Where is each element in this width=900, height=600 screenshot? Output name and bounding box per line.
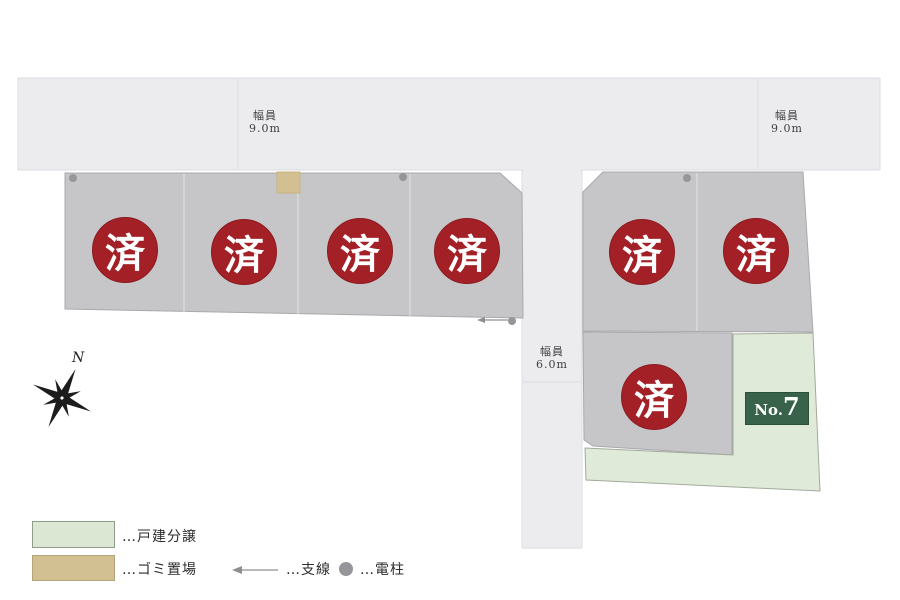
- sold-badge-lot5: 済: [609, 219, 675, 285]
- sold-badge-lot2: 済: [211, 219, 277, 285]
- lot-no-prefix: No.: [754, 401, 783, 419]
- legend-utility-pole-symbol: [339, 562, 353, 576]
- compass-north-label: N: [72, 350, 84, 366]
- road-width-value: 6.0m: [525, 358, 579, 371]
- legend-swatch-garbage-area: [32, 555, 115, 581]
- legend-branch-wire-symbol: [232, 566, 278, 574]
- road-width-text: 幅員: [238, 109, 292, 122]
- road-width-label-vertical: 幅員 6.0m: [525, 345, 579, 371]
- road-width-text: 幅員: [760, 109, 814, 122]
- legend-label-branch-line: …支線: [286, 559, 331, 579]
- legend-swatch-detached-housing: [32, 521, 115, 548]
- road-width-value: 9.0m: [760, 122, 814, 135]
- utility-pole-dot: [683, 174, 691, 182]
- lot-no-number: 7: [783, 395, 800, 419]
- site-plan-page: 幅員 9.0m 幅員 9.0m 幅員 6.0m 済 済 済 済 済 済 済 No…: [0, 0, 900, 600]
- sold-badge-lot3: 済: [327, 218, 393, 284]
- lot-no7-label: No.7: [745, 392, 809, 425]
- road-width-value: 9.0m: [238, 122, 292, 135]
- road-width-text: 幅員: [525, 345, 579, 358]
- legend-label-garbage-area: …ゴミ置場: [122, 559, 197, 579]
- garbage-area-box: [277, 172, 300, 193]
- utility-pole-dot: [69, 174, 77, 182]
- site-plan-drawing: [0, 0, 900, 600]
- road-width-label-top-right: 幅員 9.0m: [760, 109, 814, 135]
- sold-badge-lot4: 済: [434, 218, 500, 284]
- compass-rose: [19, 355, 104, 440]
- legend-label-detached-housing: …戸建分譲: [122, 526, 197, 546]
- road-width-label-top-left: 幅員 9.0m: [238, 109, 292, 135]
- utility-pole-dot: [508, 317, 516, 325]
- sold-badge-lot8: 済: [621, 364, 687, 430]
- utility-pole-dot: [399, 173, 407, 181]
- sold-badge-lot6: 済: [723, 218, 789, 284]
- sold-badge-lot1: 済: [92, 217, 158, 283]
- legend-label-utility-pole: …電柱: [360, 559, 405, 579]
